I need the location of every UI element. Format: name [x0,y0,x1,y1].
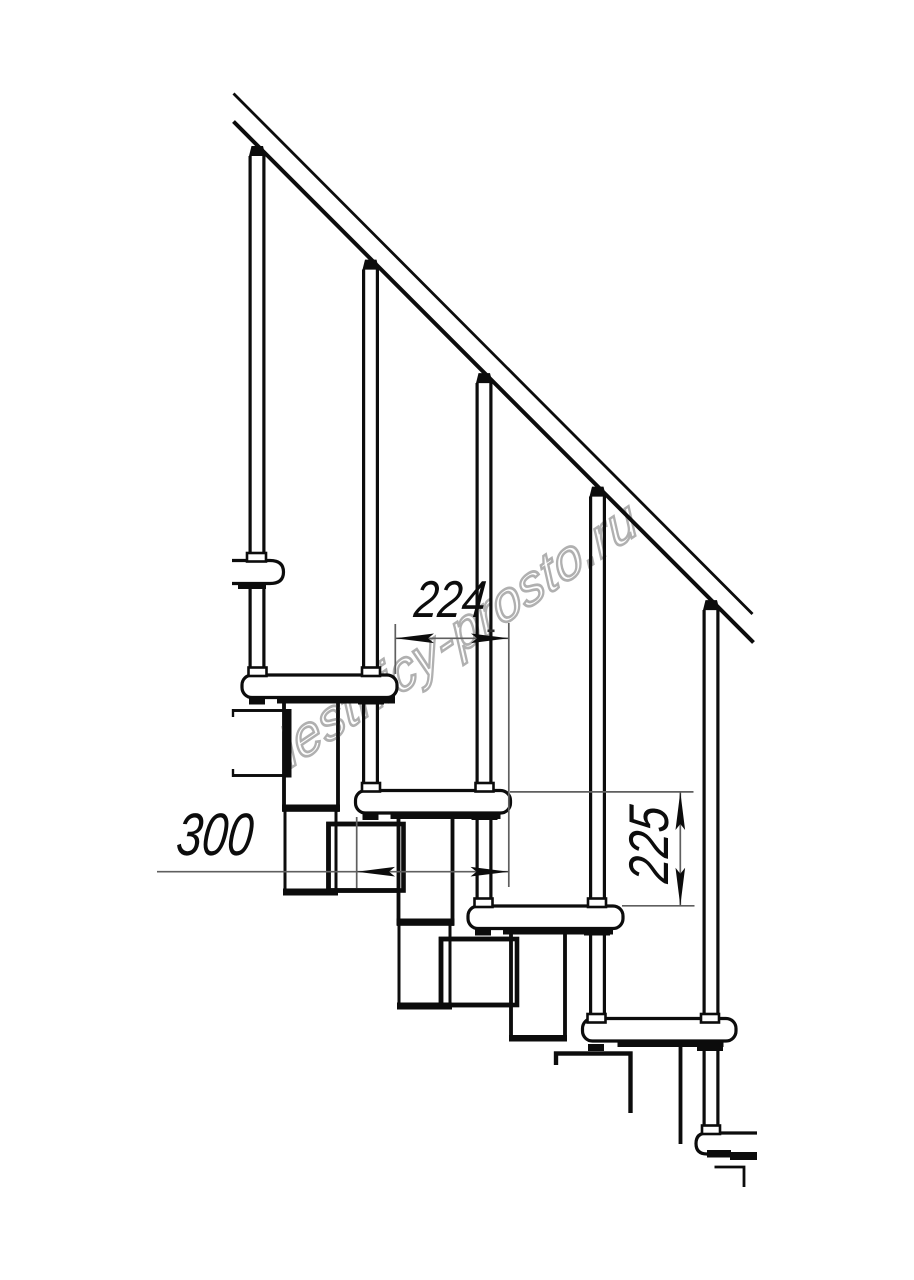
svg-text:225: 225 [617,802,680,886]
svg-text:300: 300 [174,801,257,868]
svg-text:224: 224 [411,571,489,629]
